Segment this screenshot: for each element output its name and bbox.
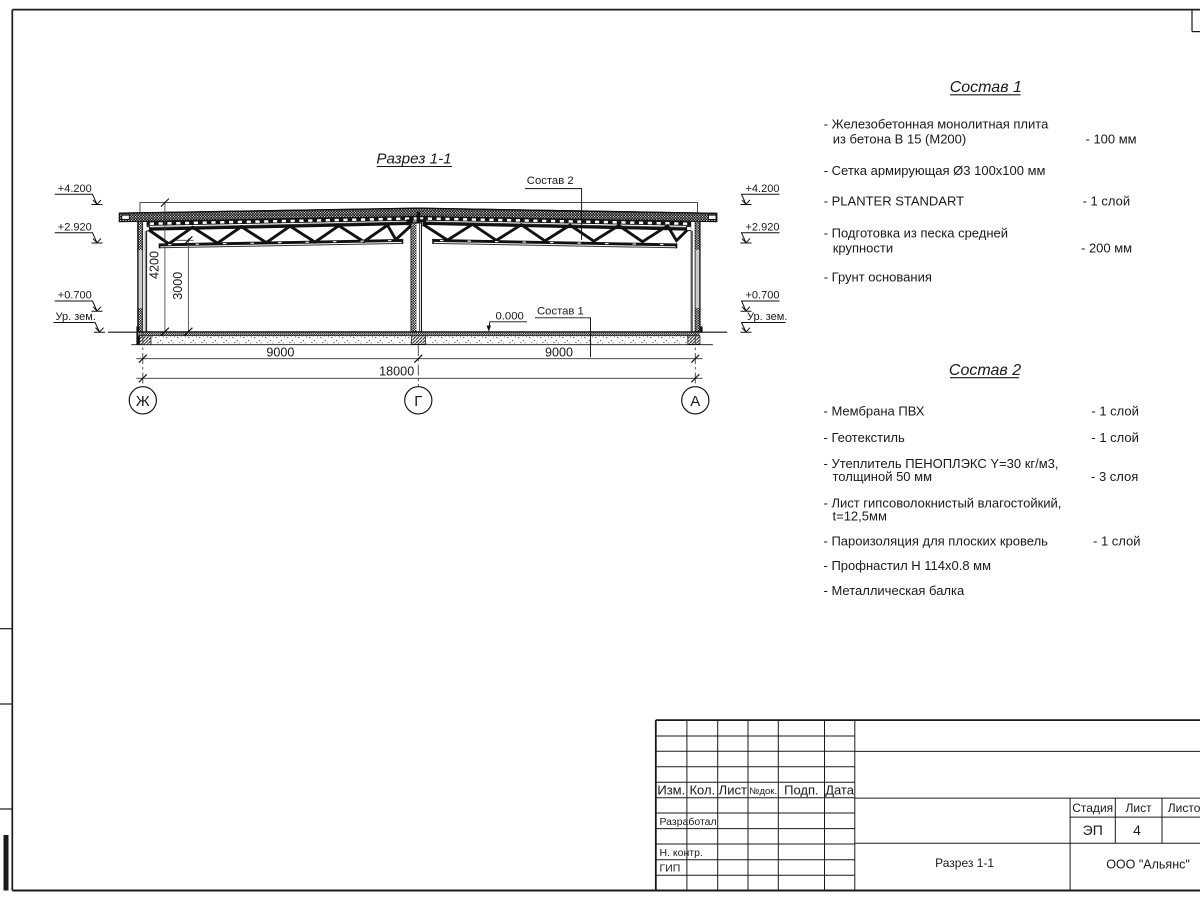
svg-text:крупности: крупности	[833, 240, 893, 255]
svg-text:Ж: Ж	[136, 393, 150, 410]
svg-text:- 3 слоя: - 3 слоя	[1091, 469, 1138, 484]
svg-text:Лист: Лист	[1126, 801, 1153, 815]
svg-text:А: А	[690, 393, 700, 410]
svg-text:Ур. зем.: Ур. зем.	[56, 311, 96, 323]
svg-text:+2.920: +2.920	[746, 222, 780, 234]
svg-text:Состав 1: Состав 1	[537, 306, 584, 318]
svg-text:Лист: Лист	[719, 783, 747, 798]
svg-text:ЭП: ЭП	[1083, 822, 1103, 838]
svg-text:- 200 мм: - 200 мм	[1081, 240, 1132, 255]
svg-text:- 100 мм: - 100 мм	[1086, 132, 1137, 147]
svg-text:t=12,5мм: t=12,5мм	[833, 509, 887, 524]
svg-text:№док.: №док.	[749, 786, 777, 797]
svg-text:Листов: Листов	[1168, 801, 1200, 815]
svg-text:Г: Г	[414, 393, 422, 410]
svg-text:+4.200: +4.200	[746, 183, 780, 195]
svg-text:из бетона В 15 (М200): из бетона В 15 (М200)	[833, 132, 967, 147]
svg-text:- 1 слой: - 1 слой	[1091, 430, 1139, 445]
svg-text:Состав 2: Состав 2	[949, 362, 1021, 379]
svg-text:- Грунт основания: - Грунт основания	[824, 269, 932, 284]
svg-text:3000: 3000	[171, 272, 185, 300]
svg-text:Дата: Дата	[825, 783, 855, 798]
svg-text:- Железобетонная монолитная п: - Железобетонная монолитная плита	[824, 116, 1049, 131]
svg-text:Кол.: Кол.	[689, 783, 715, 798]
svg-text:18000: 18000	[379, 365, 414, 379]
svg-text:+2.920: +2.920	[58, 222, 92, 234]
svg-text:ООО "Альянс": ООО "Альянс"	[1106, 857, 1190, 871]
svg-text:- 1 слой: - 1 слой	[1091, 404, 1139, 419]
svg-text:Состав 2: Состав 2	[527, 175, 574, 187]
svg-text:0.000: 0.000	[496, 311, 524, 323]
svg-text:+0.700: +0.700	[58, 290, 92, 302]
svg-text:Н. контр.: Н. контр.	[660, 847, 703, 859]
svg-text:+0.700: +0.700	[746, 290, 780, 302]
svg-text:- PLANTER STANDART: - PLANTER STANDART	[824, 194, 964, 209]
svg-text:Состав 1: Состав 1	[950, 79, 1022, 96]
svg-text:Разрез 1-1: Разрез 1-1	[935, 856, 994, 870]
svg-text:- Металлическая балка: - Металлическая балка	[824, 583, 965, 598]
svg-text:4: 4	[1133, 822, 1141, 838]
svg-text:+4.200: +4.200	[58, 183, 92, 195]
svg-text:- Геотекстиль: - Геотекстиль	[824, 430, 905, 445]
svg-text:Изм.: Изм.	[657, 783, 685, 798]
svg-text:- Мембрана ПВХ: - Мембрана ПВХ	[824, 404, 925, 419]
svg-text:4200: 4200	[148, 251, 162, 279]
svg-text:- 1 слой: - 1 слой	[1093, 533, 1141, 548]
svg-text:Подп.: Подп.	[784, 783, 819, 798]
svg-text:Разрез 1-1: Разрез 1-1	[376, 151, 451, 168]
svg-text:Ур. зем.: Ур. зем.	[747, 311, 787, 323]
svg-text:9000: 9000	[545, 346, 573, 360]
svg-text:9000: 9000	[266, 346, 294, 360]
svg-text:- Профнастил Н 114х0.8 мм: - Профнастил Н 114х0.8 мм	[824, 558, 992, 573]
svg-text:- 1 слой: - 1 слой	[1083, 194, 1131, 209]
svg-text:Разработал: Разработал	[660, 816, 717, 828]
svg-text:ГИП: ГИП	[660, 863, 681, 875]
svg-text:толщиной 50 мм: толщиной 50 мм	[833, 469, 933, 484]
svg-text:Стадия: Стадия	[1072, 801, 1113, 815]
svg-text:- Подготовка из песка средней: - Подготовка из песка средней	[824, 226, 1008, 241]
svg-text:- Пароизоляция для плоских кро: - Пароизоляция для плоских кровель	[824, 533, 1049, 548]
svg-text:- Сетка армирующая Ø3 100х100: - Сетка армирующая Ø3 100х100 мм	[824, 163, 1046, 178]
